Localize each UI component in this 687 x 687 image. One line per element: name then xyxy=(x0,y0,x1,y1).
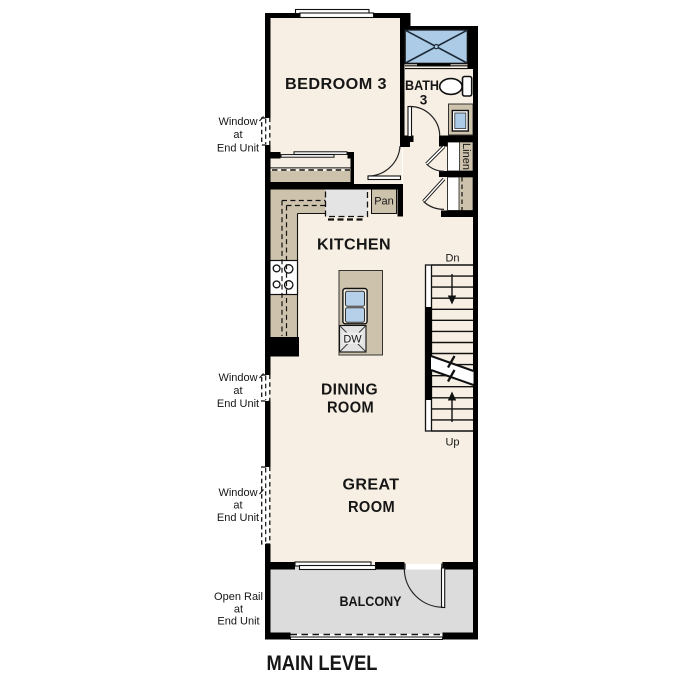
svg-text:MAIN LEVEL: MAIN LEVEL xyxy=(267,651,378,675)
svg-text:Window: Window xyxy=(218,116,257,128)
svg-text:at: at xyxy=(233,129,242,141)
svg-text:KITCHEN: KITCHEN xyxy=(317,237,391,254)
svg-text:End Unit: End Unit xyxy=(217,512,259,524)
svg-text:at: at xyxy=(234,603,243,615)
svg-text:at: at xyxy=(233,385,242,397)
svg-text:BATH: BATH xyxy=(405,78,439,93)
svg-text:End Unit: End Unit xyxy=(217,616,259,628)
svg-text:3: 3 xyxy=(420,93,428,108)
svg-text:Window: Window xyxy=(218,487,257,499)
svg-text:GREAT: GREAT xyxy=(343,477,400,494)
svg-text:ROOM: ROOM xyxy=(327,400,374,417)
svg-text:End Unit: End Unit xyxy=(217,142,259,154)
svg-text:Window: Window xyxy=(218,372,257,384)
svg-text:at: at xyxy=(233,500,242,512)
svg-text:End Unit: End Unit xyxy=(217,398,259,410)
svg-text:Open Rail: Open Rail xyxy=(214,591,263,603)
svg-text:Up: Up xyxy=(445,437,459,449)
svg-text:BALCONY: BALCONY xyxy=(340,594,402,609)
svg-text:ROOM: ROOM xyxy=(348,499,395,516)
svg-text:DINING: DINING xyxy=(321,382,378,399)
svg-text:DW: DW xyxy=(343,334,362,346)
svg-text:Linen: Linen xyxy=(460,143,472,170)
svg-text:Dn: Dn xyxy=(445,253,459,265)
svg-text:Pan: Pan xyxy=(374,196,394,208)
svg-text:BEDROOM 3: BEDROOM 3 xyxy=(285,76,387,93)
